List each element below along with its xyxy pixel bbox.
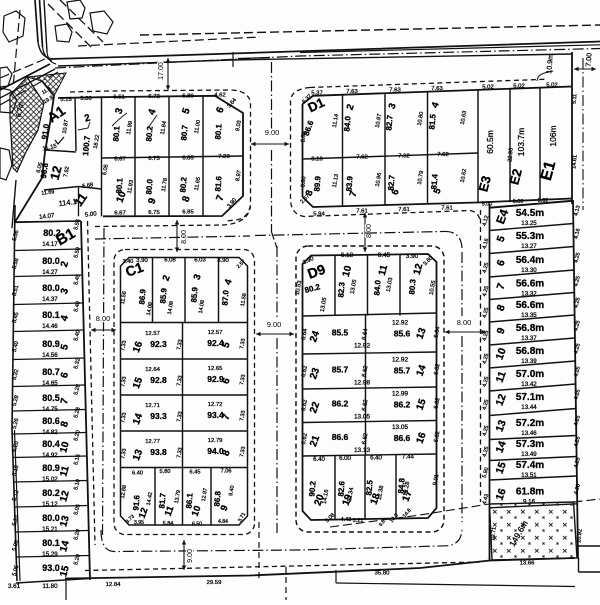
svg-text:86.2: 86.2 (332, 399, 349, 409)
svg-text:80.7: 80.7 (42, 367, 60, 377)
svg-text:6.40: 6.40 (370, 455, 382, 462)
svg-text:13.37: 13.37 (521, 335, 537, 342)
svg-text:8.00: 8.00 (457, 318, 472, 327)
svg-text:80.1: 80.1 (213, 123, 223, 140)
svg-text:80.0: 80.0 (42, 283, 60, 293)
svg-text:5.02: 5.02 (513, 83, 524, 89)
svg-text:12.57: 12.57 (208, 330, 223, 336)
svg-text:57.2m: 57.2m (516, 418, 544, 429)
svg-text:80.0: 80.0 (42, 256, 60, 266)
svg-text:11.80: 11.80 (42, 583, 58, 590)
svg-text:29.59: 29.59 (207, 580, 222, 586)
svg-text:8.00: 8.00 (365, 224, 373, 238)
svg-text:3.90: 3.90 (406, 253, 419, 260)
svg-text:14.46: 14.46 (42, 323, 58, 330)
svg-text:80.9: 80.9 (42, 339, 60, 349)
svg-text:86.6: 86.6 (332, 432, 349, 442)
svg-text:7.62: 7.62 (437, 152, 448, 158)
svg-text:80.2: 80.2 (144, 125, 154, 142)
svg-text:3.95: 3.95 (134, 520, 144, 526)
svg-text:6.85: 6.85 (182, 209, 194, 215)
svg-text:80.3: 80.3 (407, 278, 417, 295)
svg-text:14.17: 14.17 (42, 241, 58, 248)
svg-text:80.0: 80.0 (42, 513, 60, 523)
svg-text:12.92: 12.92 (392, 357, 408, 364)
svg-text:12.64: 12.64 (145, 367, 160, 373)
svg-text:86.6: 86.6 (394, 433, 411, 443)
svg-text:9.00: 9.00 (265, 128, 280, 137)
svg-text:13.44: 13.44 (521, 404, 537, 411)
svg-text:14.92: 14.92 (42, 452, 58, 459)
svg-text:81.5: 81.5 (427, 113, 437, 130)
svg-text:5.94: 5.94 (313, 212, 325, 218)
svg-text:13.05: 13.05 (354, 414, 370, 421)
svg-text:13.25: 13.25 (521, 220, 537, 227)
svg-text:6.67: 6.67 (114, 157, 125, 163)
svg-text:13.30: 13.30 (521, 267, 537, 274)
svg-text:5.00: 5.00 (482, 202, 493, 208)
svg-text:7.61: 7.61 (398, 207, 409, 213)
svg-text:56.8m: 56.8m (516, 323, 544, 334)
svg-text:81.6: 81.6 (213, 175, 223, 192)
svg-text:84.0: 84.0 (372, 279, 382, 296)
svg-text:80.1: 80.1 (111, 125, 121, 142)
svg-text:15.02: 15.02 (42, 476, 58, 483)
svg-text:83.9: 83.9 (344, 175, 354, 192)
svg-text:7.63: 7.63 (346, 89, 358, 95)
svg-text:60.5m: 60.5m (485, 130, 495, 154)
svg-text:80.6: 80.6 (42, 416, 60, 426)
svg-text:9.00: 9.00 (186, 549, 194, 563)
svg-text:12.77: 12.77 (145, 439, 160, 445)
svg-text:17.00: 17.00 (157, 62, 165, 80)
svg-text:13.13: 13.13 (354, 447, 370, 454)
svg-text:14.65: 14.65 (42, 380, 58, 387)
svg-text:12.79: 12.79 (208, 438, 223, 444)
svg-text:56.6m: 56.6m (516, 300, 544, 311)
svg-text:13.42: 13.42 (521, 381, 537, 388)
svg-text:8.80: 8.80 (301, 176, 308, 187)
svg-text:10.71: 10.71 (490, 527, 497, 541)
svg-text:12.92: 12.92 (354, 343, 370, 350)
svg-text:6.75: 6.75 (148, 210, 160, 216)
svg-text:84.0: 84.0 (342, 115, 352, 132)
svg-text:80.7: 80.7 (179, 124, 189, 141)
svg-text:14.37: 14.37 (42, 296, 58, 303)
svg-text:6.72: 6.72 (148, 94, 159, 100)
svg-text:93.8: 93.8 (150, 447, 167, 457)
svg-text:6.45: 6.45 (378, 252, 391, 259)
svg-text:13.32: 13.32 (521, 291, 537, 298)
svg-text:80.5: 80.5 (42, 393, 60, 403)
svg-text:82.3: 82.3 (336, 281, 346, 298)
svg-text:6.08: 6.08 (164, 258, 176, 264)
svg-text:15.12: 15.12 (42, 501, 58, 508)
svg-text:57.0m: 57.0m (516, 369, 544, 380)
svg-text:100.7: 100.7 (81, 135, 92, 156)
svg-text:6.89: 6.89 (182, 94, 193, 100)
svg-text:55.3m: 55.3m (516, 231, 544, 242)
svg-text:56.4m: 56.4m (516, 255, 544, 266)
svg-text:5.02: 5.02 (546, 82, 557, 88)
svg-text:3.40: 3.40 (123, 259, 134, 265)
svg-text:106m: 106m (548, 125, 558, 146)
svg-text:13.27: 13.27 (521, 243, 537, 250)
svg-text:5.30: 5.30 (80, 96, 92, 102)
svg-text:15.21: 15.21 (42, 526, 58, 533)
svg-text:12.99: 12.99 (392, 391, 408, 398)
svg-text:3.90: 3.90 (217, 258, 229, 264)
svg-text:93.3: 93.3 (150, 411, 167, 421)
svg-text:7.63: 7.63 (389, 88, 401, 94)
svg-text:35.80: 35.80 (375, 571, 390, 577)
svg-text:13.46: 13.46 (521, 430, 537, 437)
svg-text:13.35: 13.35 (521, 312, 537, 319)
svg-text:10.92: 10.92 (576, 529, 583, 543)
svg-text:93.0: 93.0 (42, 563, 60, 573)
svg-text:22.93: 22.93 (507, 148, 514, 162)
svg-text:12.71: 12.71 (145, 403, 160, 409)
svg-text:3.61: 3.61 (8, 583, 21, 590)
svg-text:80.9: 80.9 (42, 463, 60, 473)
svg-text:4.62: 4.62 (214, 93, 225, 99)
svg-text:80.0: 80.0 (144, 178, 154, 195)
svg-text:86.9: 86.9 (137, 288, 147, 305)
svg-text:61.8m: 61.8m (516, 487, 544, 498)
svg-text:81.4: 81.4 (429, 173, 439, 190)
svg-text:86.2: 86.2 (394, 400, 411, 410)
svg-text:85.5: 85.5 (332, 328, 349, 338)
svg-text:92.3: 92.3 (150, 339, 167, 349)
svg-text:7.62: 7.62 (398, 153, 409, 159)
svg-text:13.05: 13.05 (392, 424, 408, 431)
svg-text:14.27: 14.27 (42, 269, 58, 276)
svg-text:57.4m: 57.4m (516, 460, 544, 471)
svg-text:6.50: 6.50 (192, 522, 202, 528)
svg-text:13.39: 13.39 (521, 358, 537, 365)
svg-text:12.84: 12.84 (106, 582, 121, 588)
svg-text:3.90: 3.90 (136, 258, 148, 264)
svg-text:4.43: 4.43 (341, 517, 352, 523)
svg-text:85.9: 85.9 (158, 287, 168, 304)
svg-text:7.62: 7.62 (356, 155, 367, 161)
svg-text:85.7: 85.7 (332, 365, 349, 375)
svg-text:12.92: 12.92 (392, 320, 408, 327)
svg-text:57.3m: 57.3m (516, 439, 544, 450)
svg-text:5.80: 5.80 (160, 469, 171, 475)
svg-text:4.84: 4.84 (218, 519, 228, 525)
svg-text:6.67: 6.67 (114, 211, 125, 217)
svg-text:103.7m: 103.7m (516, 128, 526, 156)
svg-text:9.00: 9.00 (267, 320, 282, 329)
svg-text:80.2: 80.2 (42, 488, 60, 498)
svg-text:89.9: 89.9 (312, 175, 322, 192)
svg-text:6.75: 6.75 (148, 156, 160, 162)
svg-text:6.00: 6.00 (339, 455, 351, 462)
svg-text:7.06: 7.06 (221, 469, 232, 475)
svg-text:54.5m: 54.5m (516, 208, 544, 219)
svg-text:14.82: 14.82 (42, 429, 58, 436)
svg-text:6.18: 6.18 (341, 252, 354, 259)
svg-text:13.66: 13.66 (520, 561, 535, 567)
svg-text:56.8m: 56.8m (516, 346, 544, 357)
svg-text:7.00: 7.00 (584, 53, 593, 68)
svg-text:14.61: 14.61 (571, 155, 578, 169)
svg-text:5.02: 5.02 (482, 84, 493, 90)
svg-text:57.1m: 57.1m (516, 392, 544, 403)
svg-text:13.49: 13.49 (521, 451, 537, 458)
svg-text:14.75: 14.75 (42, 406, 58, 413)
svg-text:85.7: 85.7 (394, 366, 411, 376)
svg-text:92.8: 92.8 (150, 375, 167, 385)
svg-text:6.03: 6.03 (194, 258, 206, 264)
svg-text:85.9: 85.9 (189, 286, 199, 303)
svg-text:7.44: 7.44 (402, 454, 414, 461)
svg-text:7.61: 7.61 (356, 209, 367, 215)
svg-text:6.45: 6.45 (190, 470, 201, 476)
svg-text:3.15: 3.15 (60, 97, 72, 103)
svg-text:6.61: 6.61 (113, 95, 124, 101)
svg-text:14.56: 14.56 (42, 352, 58, 359)
svg-text:8.00: 8.00 (96, 314, 111, 323)
svg-text:12.57: 12.57 (145, 331, 160, 337)
svg-text:5.11: 5.11 (572, 94, 579, 105)
svg-text:12.65: 12.65 (208, 366, 223, 372)
svg-text:87.0: 87.0 (220, 289, 230, 306)
svg-text:80.1: 80.1 (114, 177, 124, 194)
svg-text:7.63: 7.63 (431, 86, 443, 92)
svg-text:15.29: 15.29 (42, 551, 58, 558)
svg-text:6.40: 6.40 (313, 456, 325, 463)
svg-text:56.6m: 56.6m (516, 279, 544, 290)
svg-text:82.7: 82.7 (386, 174, 396, 191)
svg-text:80.4: 80.4 (42, 439, 60, 449)
svg-text:12.98: 12.98 (354, 380, 370, 387)
svg-text:7.61: 7.61 (441, 206, 452, 212)
svg-text:85.6: 85.6 (394, 329, 411, 339)
svg-text:80.1: 80.1 (42, 538, 60, 548)
svg-text:8.16: 8.16 (311, 157, 323, 163)
svg-text:6.85: 6.85 (182, 155, 194, 161)
svg-text:7.23: 7.23 (218, 154, 230, 160)
svg-text:5.84: 5.84 (163, 521, 174, 527)
svg-text:13.51: 13.51 (521, 472, 537, 479)
svg-text:6.40: 6.40 (132, 471, 143, 477)
svg-text:82.7: 82.7 (384, 114, 394, 131)
svg-text:12.72: 12.72 (208, 402, 223, 408)
svg-text:80.2: 80.2 (178, 176, 188, 193)
svg-text:80.1: 80.1 (42, 310, 60, 320)
